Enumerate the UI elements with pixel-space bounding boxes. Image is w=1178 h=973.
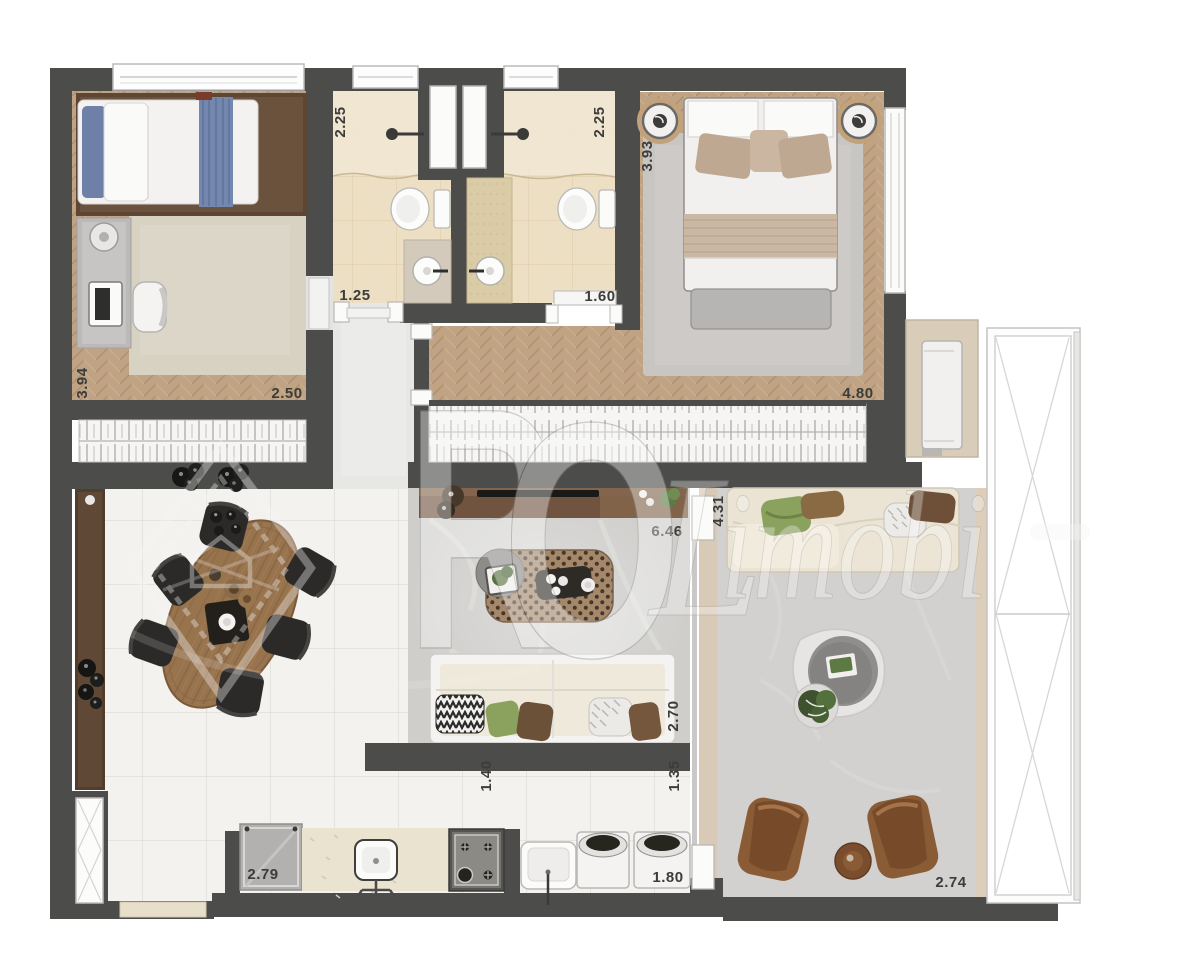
svg-text:3.93: 3.93 (639, 140, 656, 171)
svg-text:2.50: 2.50 (271, 385, 302, 402)
svg-text:1.80: 1.80 (652, 869, 683, 886)
svg-text:4.80: 4.80 (842, 385, 873, 402)
svg-text:imobi: imobi (720, 460, 988, 632)
svg-text:2.25: 2.25 (591, 106, 608, 137)
svg-text:3.94: 3.94 (74, 367, 91, 398)
svg-text:1.35: 1.35 (666, 760, 683, 791)
svg-text:2.74: 2.74 (935, 874, 966, 891)
svg-text:1.25: 1.25 (339, 287, 370, 304)
svg-text:1.60: 1.60 (584, 288, 615, 305)
svg-text:2.25: 2.25 (332, 106, 349, 137)
svg-text:1.40: 1.40 (478, 760, 495, 791)
svg-text:2.79: 2.79 (247, 866, 278, 883)
